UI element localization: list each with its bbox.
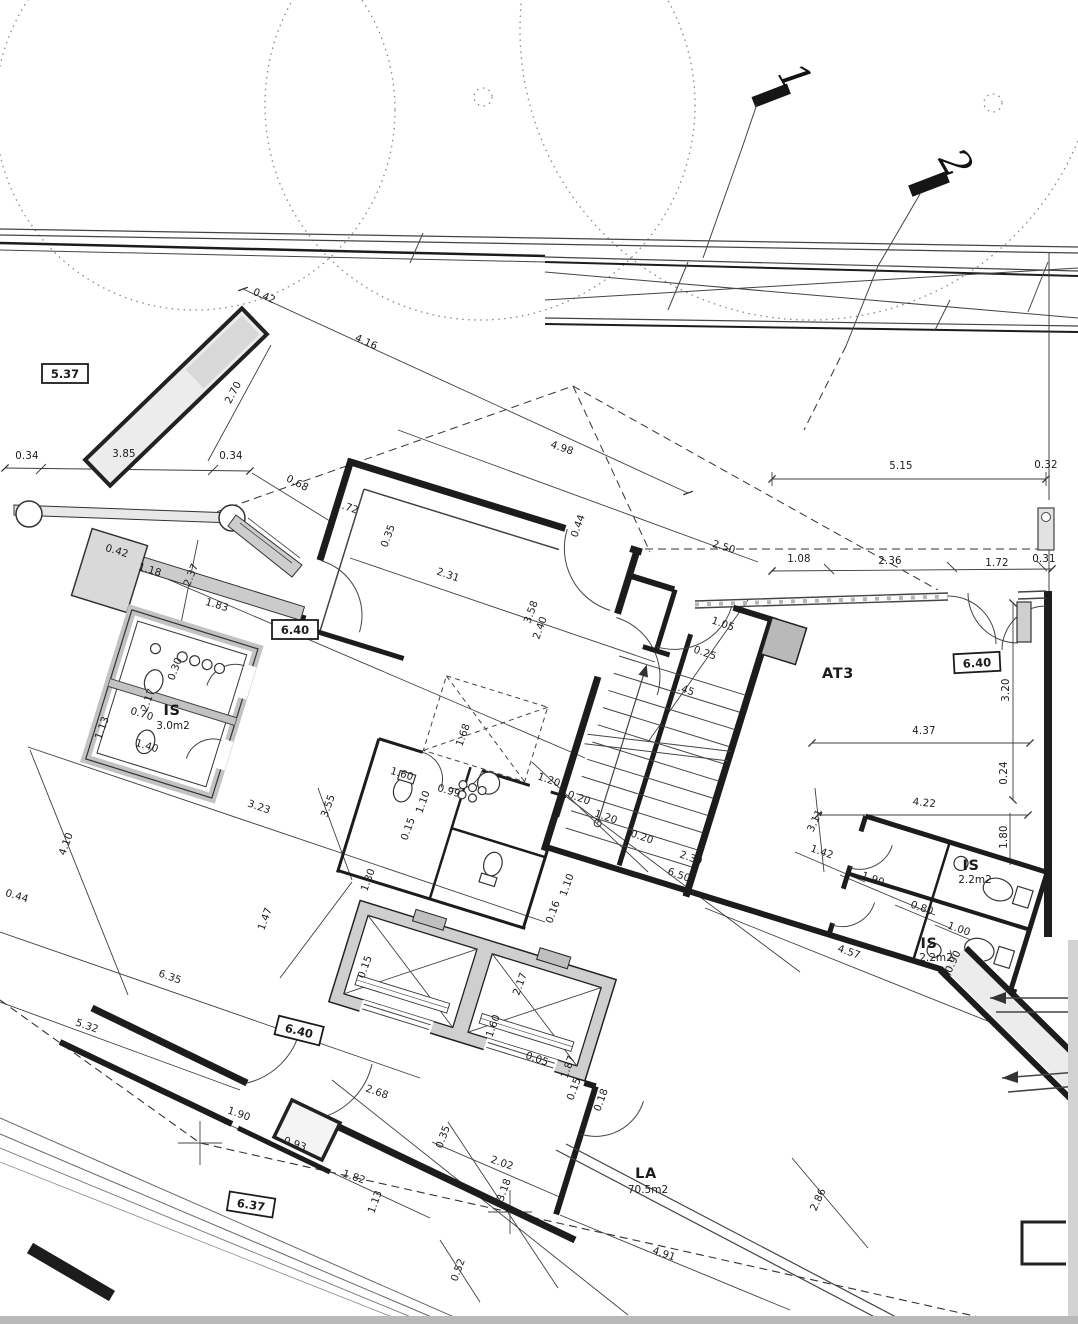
level-badge-text: 6.40 <box>962 655 991 670</box>
sink <box>188 654 201 667</box>
small-dotted-circle <box>984 94 1002 112</box>
dashed-reference-lines <box>0 386 1048 1324</box>
scan-edge <box>0 1316 1078 1324</box>
dim-label: 0.34 <box>219 451 242 462</box>
dim-label: 2.86 <box>809 1187 829 1213</box>
dim-label: 0.31 <box>1032 554 1055 565</box>
level-badge: 6.40 <box>272 620 318 639</box>
room-label: LA <box>635 1166 657 1182</box>
dim-label: 2.70 <box>223 380 244 406</box>
arrow-left <box>1002 1071 1018 1083</box>
band-tick <box>410 233 423 263</box>
hatched-wall <box>228 515 302 577</box>
dim-label: 1.80 <box>999 825 1010 848</box>
labels-layer: 0.424.162.700.343.850.340.684.985.150.32… <box>4 55 1058 1283</box>
level-badge: 5.37 <box>42 364 88 383</box>
dim-label: 1.20 <box>536 772 562 790</box>
dim-label: 5.32 <box>74 1018 100 1036</box>
road-band <box>0 229 1078 332</box>
dim-label: 0.30 <box>166 656 184 682</box>
dim-label: 3.23 <box>246 799 272 817</box>
wc-block-center <box>337 662 589 930</box>
dim-label: 1.10 <box>414 789 432 815</box>
dim-label: 0.99 <box>436 783 462 800</box>
room-area-label: 70.5m2 <box>628 1184 668 1196</box>
dim-label: 4.16 <box>353 333 379 353</box>
small-dotted-circle <box>474 88 492 106</box>
dim-label: 0.16 <box>544 899 562 925</box>
section-leader-2-dashed <box>804 346 846 430</box>
dim-label: 3.55 <box>319 793 337 819</box>
dim-label: 0.34 <box>15 451 38 462</box>
dim-label: 1.82 <box>341 1169 367 1187</box>
building-core <box>0 392 1078 1324</box>
room-label: IS <box>163 703 180 719</box>
dim-label: 0.44 <box>569 513 587 539</box>
vestibule-right-wall <box>544 548 638 851</box>
band-tick <box>935 300 950 330</box>
dim-label: 0.25 <box>692 645 718 663</box>
dim-label: 1.13 <box>366 1189 384 1215</box>
level-badge-text: 5.37 <box>51 367 79 381</box>
dim-label: 1.05 <box>710 616 736 634</box>
dim-label: 1.00 <box>946 921 972 939</box>
room-area-label: 2.2m2 <box>919 952 953 964</box>
dim-label: 1.72 <box>985 558 1008 569</box>
section-leader-1 <box>703 104 757 258</box>
dim-label: 0.15 <box>399 816 417 842</box>
section-markers <box>703 84 950 430</box>
dim-label: 3.11 <box>806 808 826 834</box>
dim-label: 6.35 <box>157 969 183 987</box>
la-wall <box>545 1083 596 1215</box>
dim-label: 0.32 <box>1034 460 1057 471</box>
dim-label: 0.68 <box>284 474 310 494</box>
door-arc <box>414 752 449 787</box>
pier <box>1017 602 1031 642</box>
dim-label: 2.02 <box>489 1155 515 1173</box>
scan-edge <box>1068 940 1078 1324</box>
door-arc <box>548 529 629 610</box>
dim-label: 3.18 <box>495 1177 513 1203</box>
dim-label: 1.83 <box>204 597 230 614</box>
door-arc <box>948 596 996 644</box>
dim-label: 6.50 <box>666 867 692 885</box>
dim-label: 4.22 <box>912 797 937 810</box>
wing-block <box>71 529 147 613</box>
sink <box>149 642 162 655</box>
dim-label: 1.47 <box>256 906 274 932</box>
dim-label: 1.90 <box>860 871 886 889</box>
dim-label: 0.42 <box>251 287 277 307</box>
room-area-label: 3.0m2 <box>156 720 190 732</box>
dim-label: 0.24 <box>999 761 1010 784</box>
dimension-lines <box>0 289 1052 1315</box>
dim-label: 3.85 <box>112 449 135 460</box>
dim-label: 3.20 <box>1001 678 1012 701</box>
dim-label: 1.08 <box>787 554 810 565</box>
dim-label: 4.37 <box>912 726 935 737</box>
room-label: IS <box>962 858 979 874</box>
dim-label: 4.10 <box>57 831 75 857</box>
column <box>16 501 42 527</box>
dim-label: 1.68 <box>454 722 472 748</box>
dim-label: 0.35 <box>379 523 397 549</box>
dim-label: 2.50 <box>711 539 737 556</box>
dim-label: 1.80 <box>359 867 377 893</box>
elevator-block <box>328 893 618 1083</box>
floor-plan-page: 0.424.162.700.343.850.340.684.985.150.32… <box>0 0 1078 1324</box>
sink <box>201 658 214 671</box>
dim-label: 5.15 <box>889 461 912 472</box>
level-badge-text: 6.40 <box>281 623 309 637</box>
dim-label: 0.20 <box>629 829 655 847</box>
survey-cross <box>178 1121 222 1165</box>
dim-label: 1.42 <box>809 844 835 862</box>
dim-label: 0.35 <box>434 1124 452 1150</box>
dim-label: 0.20 <box>566 790 592 808</box>
level-badge: 6.37 <box>227 1192 275 1218</box>
level-badge: 6.40 <box>954 652 1001 673</box>
dim-label: 1.10 <box>558 872 576 898</box>
room-label: IS <box>920 936 937 952</box>
dim-label: 4.98 <box>549 440 575 458</box>
level-badge: 6.40 <box>275 1016 324 1046</box>
room-area-label: 2.2m2 <box>958 874 992 886</box>
dim-label: 2.31 <box>435 567 461 585</box>
band-tick <box>668 262 688 310</box>
kerb-bar <box>30 1248 112 1296</box>
floor-plan-drawing: 0.424.162.700.343.850.340.684.985.150.32… <box>0 0 1078 1324</box>
at3-top-wall <box>695 593 948 608</box>
dim-label: 2.36 <box>878 556 901 567</box>
detail-box <box>1022 1222 1066 1264</box>
dim-label: 2.68 <box>364 1084 390 1102</box>
dim-label: 0.44 <box>4 888 30 905</box>
door-arc <box>968 593 1018 643</box>
room-label: AT3 <box>822 666 854 682</box>
